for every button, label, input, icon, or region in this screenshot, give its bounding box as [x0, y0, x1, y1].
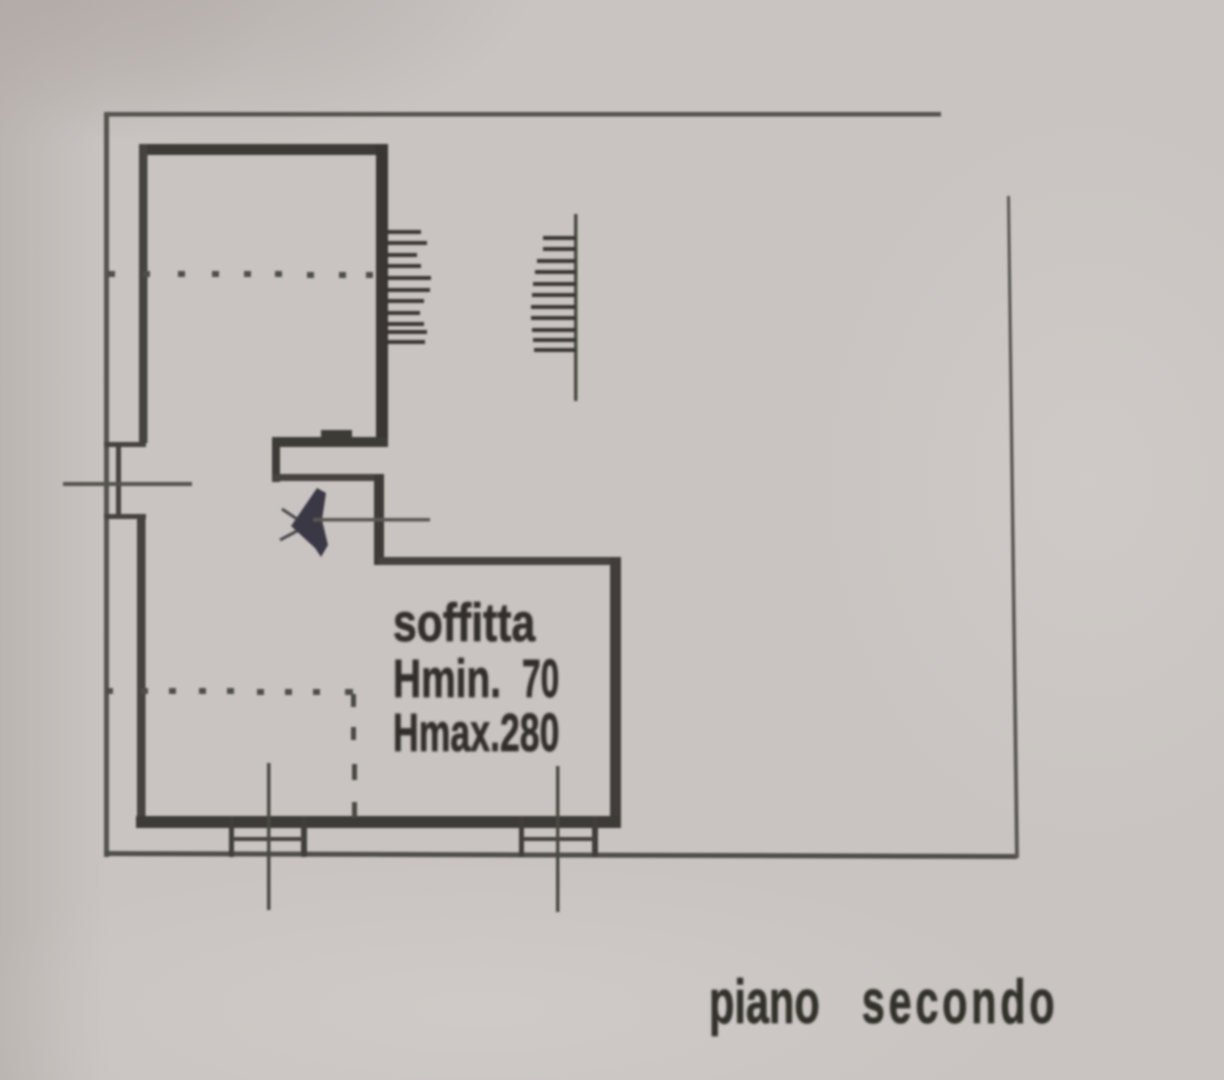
svg-text:soffitta: soffitta — [393, 593, 536, 653]
svg-text:70: 70 — [522, 648, 559, 709]
svg-text:Hmax.280: Hmax.280 — [393, 703, 559, 763]
svg-text:Hmin.: Hmin. — [393, 648, 501, 709]
svg-text:piano: piano — [709, 968, 820, 1037]
svg-text:secondo: secondo — [862, 968, 1059, 1037]
